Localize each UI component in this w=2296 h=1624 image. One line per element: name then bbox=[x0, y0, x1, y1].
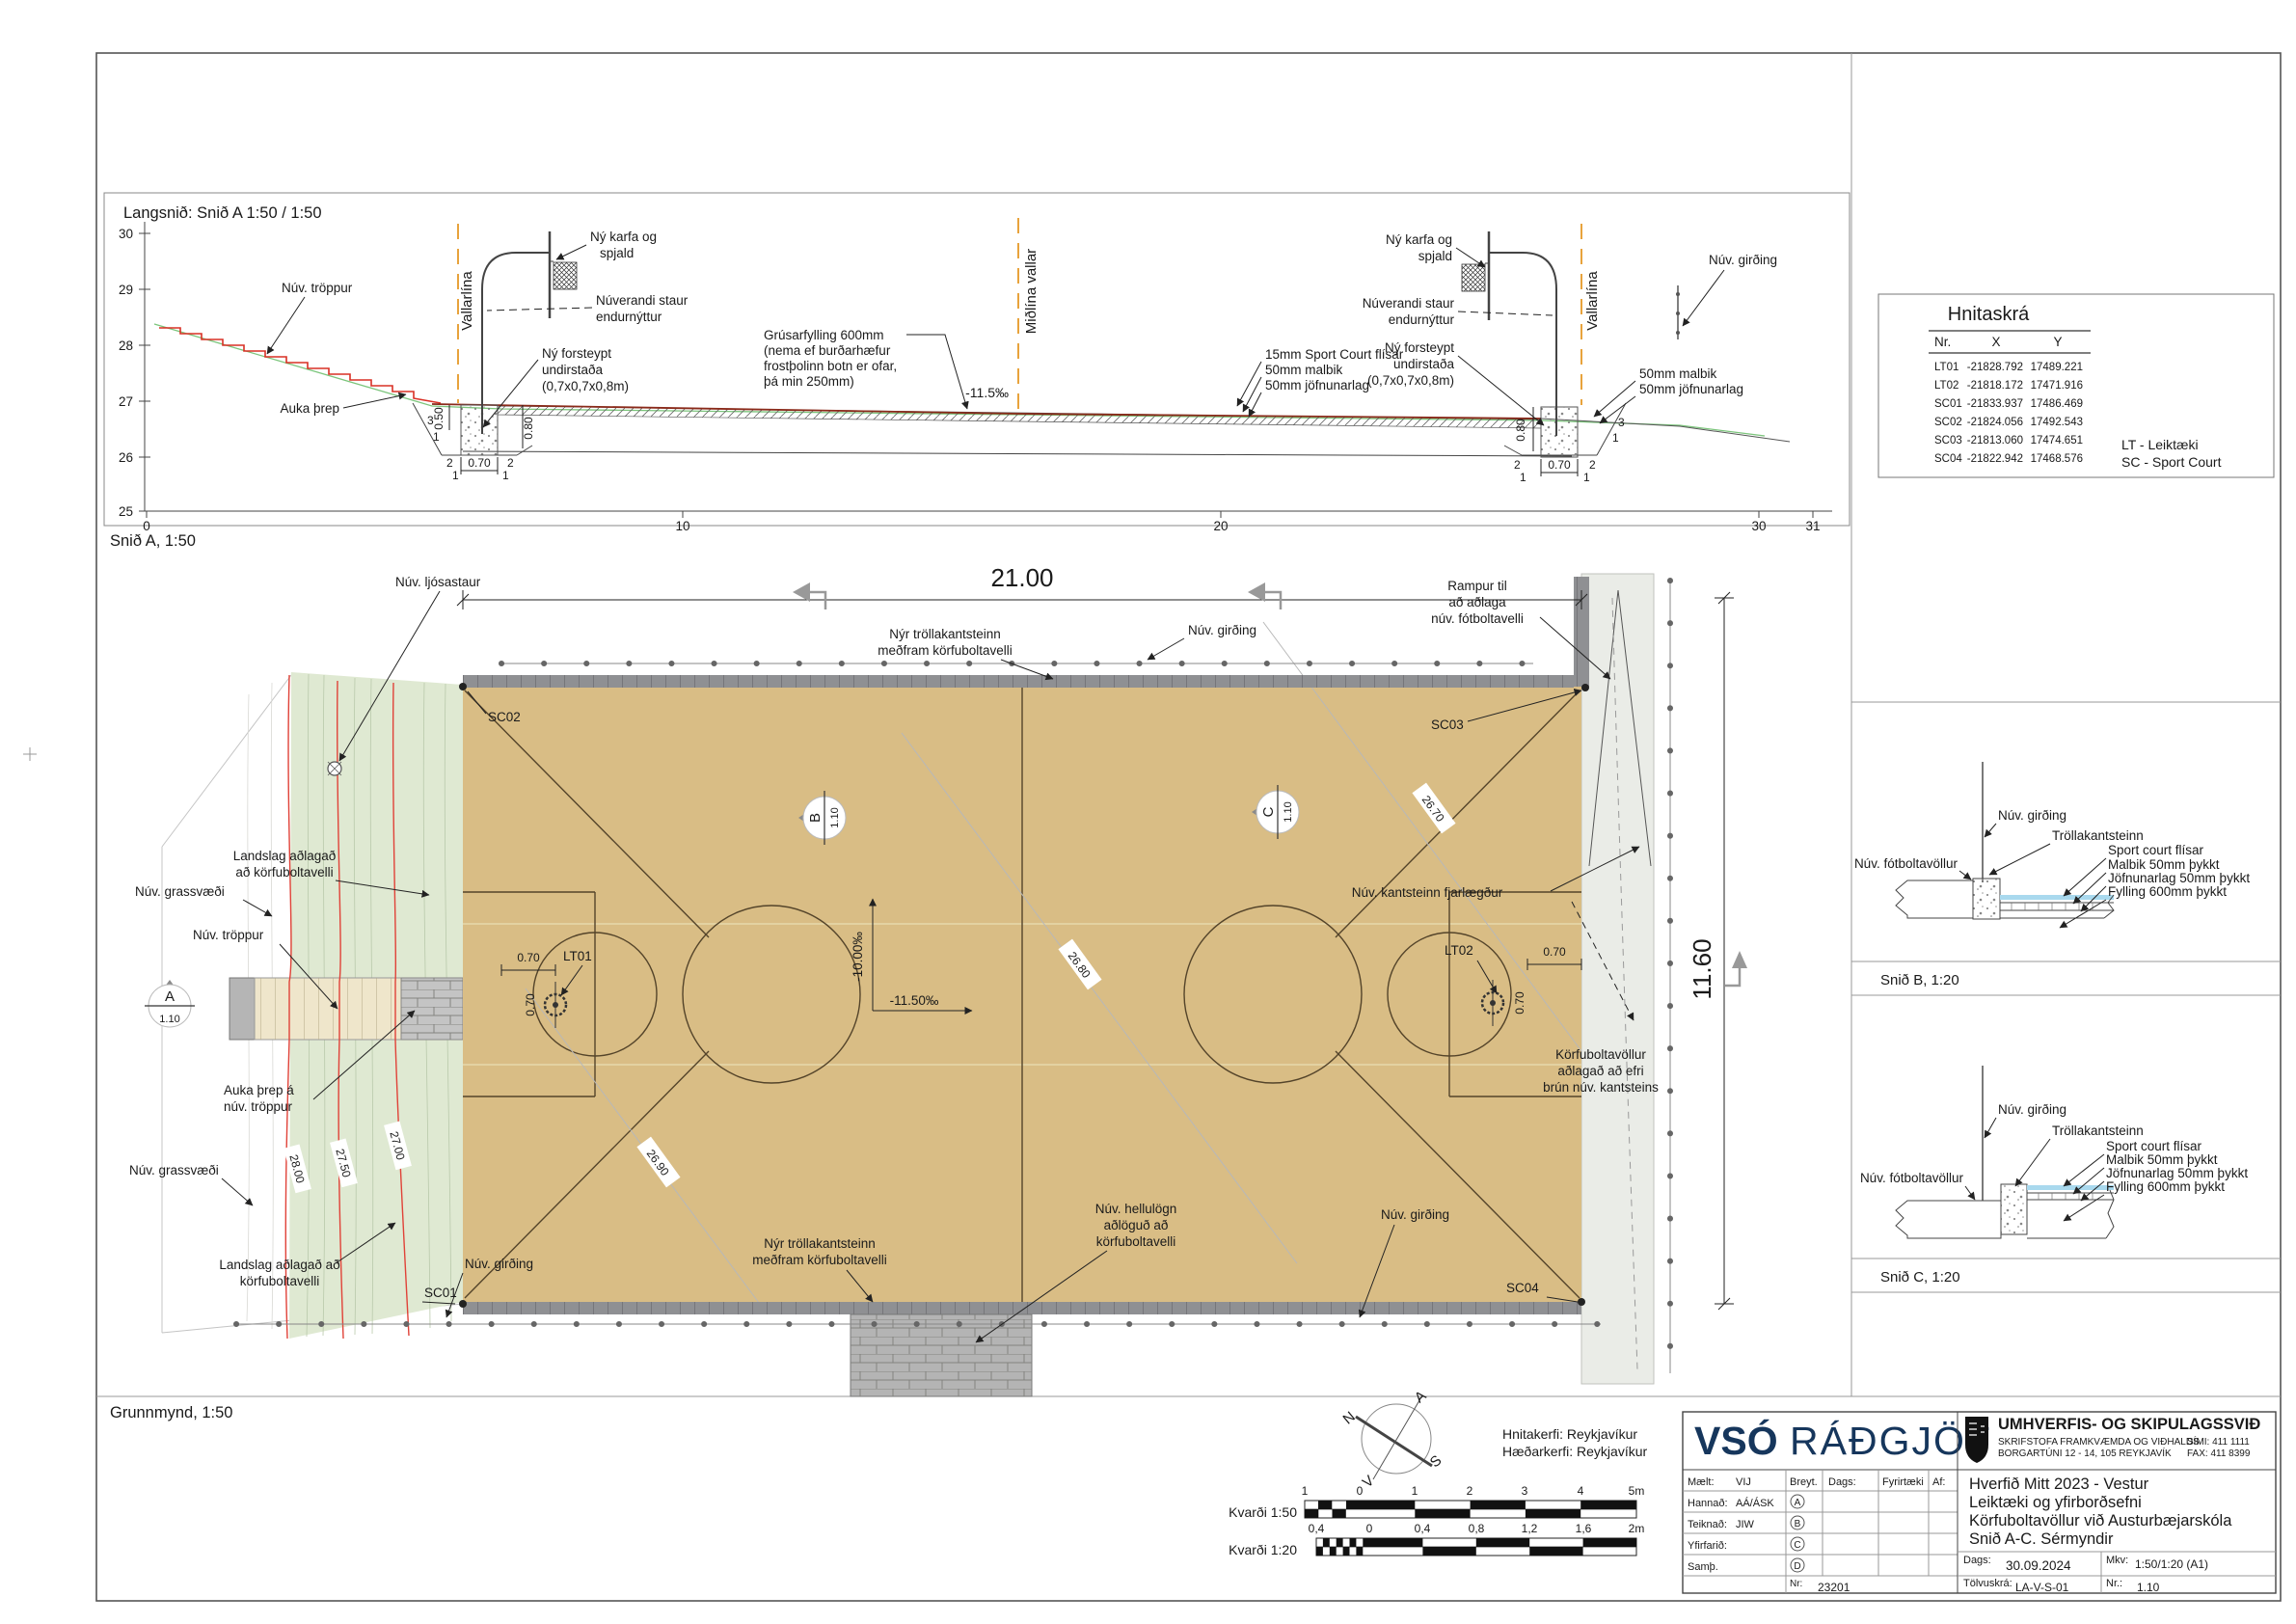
cell: LT01 bbox=[1934, 362, 1958, 373]
football-field-strip bbox=[1581, 574, 1654, 1384]
tick: 0 bbox=[1357, 1484, 1364, 1498]
label-rampur: að aðlaga bbox=[1448, 595, 1506, 609]
marker-scale: 1.10 bbox=[1283, 801, 1294, 822]
section-marker-a: A 1.10 bbox=[145, 980, 195, 1027]
nr-value: 23201 bbox=[1818, 1581, 1850, 1594]
section-x-axis: 0 10 20 30 31 bbox=[143, 511, 1832, 533]
slope-num: 2 bbox=[1589, 458, 1596, 472]
label-hellulogn: Núv. hellulögn bbox=[1095, 1202, 1177, 1216]
label-kantsteinn: Tröllakantsteinn bbox=[2052, 1123, 2144, 1138]
label-layer: Sport court flísar bbox=[2106, 1139, 2202, 1153]
label-girding: Núv. girðing bbox=[465, 1257, 533, 1271]
existing-stairs bbox=[159, 328, 441, 403]
cell: 17492.543 bbox=[2031, 417, 2083, 428]
x-tick: 31 bbox=[1805, 519, 1820, 533]
label-staur: endurnýttur bbox=[596, 310, 662, 324]
label-layer: 15mm Sport Court flísar bbox=[1265, 347, 1404, 362]
x-tick: 30 bbox=[1751, 519, 1766, 533]
x-tick: 0 bbox=[143, 519, 150, 533]
paving-pattern bbox=[851, 1314, 1032, 1396]
dim-080: 0.80 bbox=[522, 417, 535, 440]
label-grusarfylling: þá min 250mm) bbox=[764, 374, 854, 389]
cell: -21833.937 bbox=[1967, 398, 2023, 410]
lt01-label: LT01 bbox=[563, 949, 592, 963]
dim: 0.70 bbox=[524, 993, 537, 1016]
label-sc04: SC04 bbox=[1506, 1281, 1539, 1295]
label-staur: Núverandi staur bbox=[1363, 296, 1455, 311]
dim-070: 0.70 bbox=[468, 456, 491, 470]
y-tick: 29 bbox=[119, 283, 133, 297]
row-value: VIJ bbox=[1736, 1476, 1751, 1488]
tolvuskra-label: Tölvuskrá: bbox=[1963, 1578, 2012, 1589]
project-line: Hverfið Mitt 2023 - Vestur bbox=[1969, 1475, 2149, 1493]
row-label: Teiknað: bbox=[1688, 1519, 1727, 1530]
label-landslag: Landslag aðlagað að bbox=[219, 1258, 339, 1272]
plan-view: Grunnmynd, 1:50 28.00 27.50 27.00 bbox=[110, 563, 1747, 1421]
row-label: Mælt: bbox=[1688, 1476, 1715, 1488]
mkv-label: Mkv: bbox=[2106, 1555, 2128, 1566]
row-label: Hannað: bbox=[1688, 1498, 1728, 1509]
dim: 0.70 bbox=[1543, 945, 1566, 959]
plan-caption: Grunnmynd, 1:50 bbox=[110, 1404, 233, 1421]
label-trollakant: Nýr tröllakantsteinn bbox=[889, 627, 1001, 641]
dim-070: 0.70 bbox=[1548, 458, 1571, 472]
phone: SÍMI: 411 1111 bbox=[2187, 1435, 2250, 1448]
label-undirstada: (0,7x0,7x0,8m) bbox=[542, 379, 629, 393]
label-trollakant: meðfram körfuboltavelli bbox=[752, 1253, 887, 1267]
dept-name: UMHVERFIS- OG SKIPULAGSSVIÐ bbox=[1998, 1416, 2260, 1433]
label-troppur: Núv. tröppur bbox=[193, 928, 264, 942]
rev-letter: A bbox=[1795, 1498, 1801, 1508]
label-auka: núv. tröppur bbox=[224, 1099, 293, 1114]
fill-bottom bbox=[463, 451, 1572, 456]
row-label: Yfirfarið: bbox=[1688, 1540, 1727, 1552]
label-fotbolta: Núv. fótboltavöllur bbox=[1860, 1171, 1964, 1185]
row-label: Samþ. bbox=[1688, 1561, 1718, 1573]
label-staur: Núverandi staur bbox=[596, 293, 689, 308]
row-value: JIW bbox=[1736, 1519, 1755, 1530]
tick: 0,4 bbox=[1309, 1522, 1325, 1535]
sport-court-layer bbox=[2027, 1185, 2114, 1190]
label-grassvaedi: Núv. grassvæði bbox=[135, 884, 225, 899]
slope-num: 1 bbox=[502, 469, 509, 482]
slope-num: 3 bbox=[427, 414, 434, 427]
footer: N A S V Hnitakerfi: Reykjavíkur Hæðarker… bbox=[1229, 1388, 1647, 1557]
label-sc02: SC02 bbox=[488, 710, 521, 724]
logo-vso: VSÓ bbox=[1694, 1419, 1778, 1463]
midlina-vallar: Miðlína vallar bbox=[1018, 218, 1040, 413]
slope-num: 3 bbox=[1618, 416, 1625, 429]
haedarkerfi: Hæðarkerfi: Reykjavíkur bbox=[1502, 1444, 1647, 1459]
dim-080: 0.80 bbox=[1514, 419, 1527, 442]
detail-b: Núv. girðing Tröllakantsteinn Sport cour… bbox=[1851, 702, 2281, 995]
section-cut-arrow bbox=[1248, 582, 1265, 602]
tolvuskra-value: LA-V-S-01 bbox=[2015, 1581, 2069, 1594]
section-caption: Snið A, 1:50 bbox=[110, 532, 196, 550]
cell: -21822.942 bbox=[1967, 453, 2023, 465]
label-korfubolta: brún núv. kantsteins bbox=[1543, 1080, 1659, 1095]
vallarlina-label: Vallarlína bbox=[1584, 271, 1601, 331]
y-tick: 30 bbox=[119, 227, 133, 241]
label-karfa: Ný karfa og bbox=[1386, 232, 1452, 247]
col-header: Breyt. bbox=[1790, 1476, 1818, 1488]
label-grusarfylling: frostþolinn botn er ofar, bbox=[764, 359, 897, 373]
cell: SC01 bbox=[1934, 398, 1962, 410]
tick: 1 bbox=[1302, 1484, 1309, 1498]
office-name: SKRIFSTOFA FRAMKVÆMDA OG VIÐHALDS bbox=[1998, 1437, 2200, 1448]
midlina-label: Miðlína vallar bbox=[1023, 249, 1040, 334]
section-title: Langsnið: Snið A 1:50 / 1:50 bbox=[123, 204, 322, 222]
label-ljosastaur: Núv. ljósastaur bbox=[395, 575, 481, 589]
nr-label: Nr: bbox=[1790, 1579, 1802, 1589]
slope-h-label: -11.50‰ bbox=[890, 993, 939, 1008]
tick: 1,2 bbox=[1522, 1522, 1538, 1535]
existing-slab bbox=[1896, 880, 1973, 918]
label-layer: Malbik 50mm þykkt bbox=[2106, 1152, 2218, 1167]
cell: -21813.060 bbox=[1967, 435, 2023, 447]
row-value: AÁ/ÁSK bbox=[1736, 1497, 1774, 1509]
existing-stairs-plan bbox=[230, 978, 463, 1040]
detail-b-caption: Snið B, 1:20 bbox=[1880, 972, 1959, 988]
label-fotbolta: Núv. fótboltavöllur bbox=[1854, 856, 1958, 871]
cell: 17489.221 bbox=[2031, 362, 2083, 373]
address: BORGARTÚNI 12 - 14, 105 REYKJAVÍK bbox=[1998, 1447, 2172, 1459]
label-grusarfylling: (nema ef burðarhæfur bbox=[764, 343, 891, 358]
label-undirstada: undirstaða bbox=[542, 363, 604, 377]
tick: 4 bbox=[1578, 1484, 1584, 1498]
slope-num: 1 bbox=[452, 469, 459, 482]
dim-width: 21.00 bbox=[990, 563, 1053, 592]
col-header: Y bbox=[2053, 335, 2062, 349]
y-tick: 27 bbox=[119, 394, 133, 409]
marker-scale: 1.10 bbox=[829, 807, 841, 827]
label-layer: 50mm jöfnunarlag bbox=[1265, 378, 1369, 392]
tick: 0 bbox=[1366, 1522, 1373, 1535]
drawing-sheet: Langsnið: Snið A 1:50 / 1:50 Snið A, 1:5… bbox=[0, 0, 2296, 1624]
slope-num: 2 bbox=[507, 456, 514, 470]
light-pole bbox=[328, 762, 341, 775]
project-line: Körfuboltavöllur við Austurbæjarskóla bbox=[1969, 1512, 2232, 1529]
label-landslag: körfuboltavelli bbox=[240, 1274, 320, 1288]
basket-net-left bbox=[554, 262, 577, 289]
section-y-axis: 30 29 28 27 26 25 bbox=[119, 222, 150, 519]
dim-height: 11.60 bbox=[1688, 938, 1716, 999]
label-layer: 50mm malbik bbox=[1265, 363, 1343, 377]
y-tick: 28 bbox=[119, 338, 133, 353]
longitudinal-section: Langsnið: Snið A 1:50 / 1:50 Snið A, 1:5… bbox=[104, 193, 1850, 550]
label-karfa: Ný karfa og bbox=[590, 230, 657, 244]
y-tick: 25 bbox=[119, 504, 133, 519]
label-grusarfylling: Grúsarfylling 600mm bbox=[764, 328, 884, 342]
title-block: VSÓ RÁÐGJÖF UMHVERFIS- OG SKIPULAGSSVIÐ … bbox=[1683, 1412, 2276, 1594]
basket-net-right bbox=[1462, 264, 1485, 291]
cell: -21818.172 bbox=[1967, 380, 2023, 392]
legend-sc: SC - Sport Court bbox=[2121, 454, 2222, 470]
label-undirstada: undirstaða bbox=[1393, 357, 1455, 371]
label-karfa: spjald bbox=[1418, 249, 1452, 263]
compass-n: N bbox=[1339, 1409, 1358, 1428]
label-hellulogn: körfuboltavelli bbox=[1096, 1234, 1176, 1249]
scale-label: Kvarði 1:20 bbox=[1229, 1542, 1297, 1557]
label-kantsteinn: Tröllakantsteinn bbox=[2052, 828, 2144, 843]
tick: 2 bbox=[1467, 1484, 1473, 1498]
label-girding: Núv. girðing bbox=[1381, 1207, 1449, 1222]
label-girding: Núv. girðing bbox=[1188, 623, 1256, 637]
label-layer: Fylling 600mm þykkt bbox=[2106, 1179, 2225, 1194]
tick: 1,6 bbox=[1576, 1522, 1592, 1535]
label-layer: Jöfnunarlag 50mm þykkt bbox=[2106, 1166, 2248, 1180]
label-sc03: SC03 bbox=[1431, 717, 1464, 732]
legend-lt: LT - Leiktæki bbox=[2121, 437, 2199, 452]
compass-s: S bbox=[1427, 1452, 1445, 1471]
logo-radgjof: RÁÐGJÖF bbox=[1790, 1419, 1992, 1463]
tick: 0,8 bbox=[1469, 1522, 1485, 1535]
label-sc01: SC01 bbox=[424, 1286, 457, 1300]
compass: N A S V bbox=[1339, 1388, 1445, 1491]
dim-050: 0.50 bbox=[432, 407, 446, 430]
col-header: Af: bbox=[1932, 1476, 1945, 1488]
slope-num: 1 bbox=[1520, 471, 1526, 484]
rev-letter: B bbox=[1795, 1519, 1801, 1529]
nr2-value: 1.10 bbox=[2137, 1581, 2160, 1594]
marker-letter: C bbox=[1260, 806, 1277, 817]
curb-block bbox=[2001, 1184, 2027, 1234]
marker-letter: A bbox=[165, 988, 175, 1005]
label-layer: Sport court flísar bbox=[2108, 843, 2204, 857]
detail-c-caption: Snið C, 1:20 bbox=[1880, 1269, 1960, 1286]
label-karfa: spjald bbox=[600, 246, 634, 260]
label-landslag: að körfuboltavelli bbox=[235, 865, 333, 880]
project-line: Snið A-C. Sérmyndir bbox=[1969, 1530, 2114, 1548]
y-tick: 26 bbox=[119, 450, 133, 465]
tick: 5m bbox=[1629, 1484, 1645, 1498]
marker-letter: B bbox=[807, 813, 824, 823]
drawing-canvas: Langsnið: Snið A 1:50 / 1:50 Snið A, 1:5… bbox=[0, 0, 2296, 1624]
basketball-court: 26.70 26.80 26.90 -10.00‰ -11.50‰ LT01 0… bbox=[463, 622, 1581, 1307]
existing-slab bbox=[1896, 1201, 2001, 1238]
coordinate-table: Hnitaskrá Nr. X Y LT01 -21828.792 17489.… bbox=[1878, 294, 2274, 477]
cell: -21828.792 bbox=[1967, 362, 2023, 373]
table-title: Hnitaskrá bbox=[1948, 304, 2030, 325]
slope-num: 1 bbox=[1583, 471, 1590, 484]
label-kantsteinn: Núv. kantsteinn fjarlægður bbox=[1352, 885, 1503, 900]
cell: -21824.056 bbox=[1967, 417, 2023, 428]
curb-block bbox=[1973, 879, 2000, 919]
label-slope: -11.5‰ bbox=[965, 385, 1009, 400]
project-line: Leiktæki og yfirborðsefni bbox=[1969, 1494, 2142, 1511]
label-staur: endurnýttur bbox=[1389, 312, 1455, 327]
label-undirstada: Ný forsteypt bbox=[1385, 340, 1454, 355]
cell: SC02 bbox=[1934, 417, 1962, 428]
mkv-value: 1:50/1:20 (A1) bbox=[2135, 1557, 2208, 1571]
label-hellulogn: aðlöguð að bbox=[1104, 1218, 1169, 1232]
label-trollakant: meðfram körfuboltavelli bbox=[878, 643, 1013, 658]
vallarlina-left: Vallarlína bbox=[458, 224, 475, 403]
scale-bar-50: Kvarði 1:50 1 0 1 2 3 4 5m bbox=[1229, 1484, 1644, 1520]
label-undirstada: (0,7x0,7x0,8m) bbox=[1367, 373, 1454, 388]
label-layer: Fylling 600mm þykkt bbox=[2108, 884, 2227, 899]
col-header: Dags: bbox=[1828, 1476, 1856, 1488]
x-tick: 20 bbox=[1213, 519, 1228, 533]
label-layer: Jöfnunarlag 50mm þykkt bbox=[2108, 871, 2250, 885]
label-auka-threp: Auka þrep bbox=[280, 401, 339, 416]
dags-label: Dags: bbox=[1963, 1555, 1991, 1566]
lt02-label: LT02 bbox=[1445, 943, 1473, 958]
label-undirstada: Ný forsteypt bbox=[542, 346, 611, 361]
cell: SC03 bbox=[1934, 435, 1962, 447]
hnitakerfi: Hnitakerfi: Reykjavíkur bbox=[1502, 1426, 1637, 1442]
label-troppur: Núv. tröppur bbox=[282, 281, 353, 295]
slope-num: 2 bbox=[446, 456, 453, 470]
scale-label: Kvarði 1:50 bbox=[1229, 1504, 1297, 1520]
col-header: X bbox=[1991, 335, 2000, 349]
label-korfubolta: aðlagað að efri bbox=[1557, 1064, 1643, 1078]
tick: 0,4 bbox=[1415, 1522, 1431, 1535]
slope-num: 1 bbox=[433, 430, 440, 444]
label-layer: Malbik 50mm þykkt bbox=[2108, 857, 2220, 872]
col-header: Fyrirtæki bbox=[1882, 1476, 1924, 1488]
dim: 0.70 bbox=[517, 951, 540, 964]
fax: FAX: 411 8399 bbox=[2187, 1448, 2251, 1459]
registration-mark bbox=[23, 747, 37, 761]
vallarlina-label: Vallarlína bbox=[459, 271, 475, 331]
dim: 0.70 bbox=[1513, 991, 1526, 1015]
rev-letter: D bbox=[1794, 1561, 1800, 1572]
detail-c: Núv. girðing Tröllakantsteinn Sport cour… bbox=[1851, 1066, 2281, 1292]
x-tick: 10 bbox=[675, 519, 689, 533]
label-landslag: Landslag aðlagað bbox=[233, 849, 337, 863]
rev-letter: C bbox=[1794, 1540, 1800, 1551]
label-auka: Auka þrep á bbox=[224, 1083, 294, 1097]
cell: 17486.469 bbox=[2031, 398, 2083, 410]
label-layer: 50mm jöfnunarlag bbox=[1639, 382, 1743, 396]
nr2-label: Nr.: bbox=[2106, 1578, 2122, 1589]
slope-num: 1 bbox=[1612, 431, 1619, 445]
col-header: Nr. bbox=[1934, 335, 1951, 349]
cell: LT02 bbox=[1934, 380, 1958, 392]
tick: 1 bbox=[1412, 1484, 1418, 1498]
label-girding: Núv. girðing bbox=[1998, 1102, 2066, 1117]
label-layer: 50mm malbik bbox=[1639, 366, 1717, 381]
cell: SC04 bbox=[1934, 453, 1962, 465]
compass-a: A bbox=[1412, 1388, 1430, 1406]
marker-scale: 1.10 bbox=[159, 1014, 179, 1025]
label-rampur: núv. fótboltavelli bbox=[1431, 611, 1524, 626]
section-cut-arrow bbox=[793, 582, 810, 602]
cell: 17474.651 bbox=[2031, 435, 2083, 447]
vallarlina-right: Vallarlína bbox=[1581, 224, 1601, 405]
city-shield-icon bbox=[1965, 1417, 1988, 1463]
label-trollakant: Nýr tröllakantsteinn bbox=[764, 1236, 876, 1251]
foundation-right: 0.80 0.70 2 1 2 1 3 1 bbox=[1462, 231, 1626, 484]
cell: 17471.916 bbox=[2031, 380, 2083, 392]
label-girding: Núv. girðing bbox=[1709, 253, 1777, 267]
label-girding: Núv. girðing bbox=[1998, 808, 2066, 823]
dags-value: 30.09.2024 bbox=[2006, 1558, 2071, 1573]
tick: 2m bbox=[1629, 1522, 1645, 1535]
cell: 17468.576 bbox=[2031, 453, 2083, 465]
label-rampur: Rampur til bbox=[1447, 579, 1507, 593]
slope-num: 2 bbox=[1514, 458, 1521, 472]
north-arrow bbox=[1732, 951, 1747, 968]
label-grassvaedi: Núv. grassvæði bbox=[129, 1163, 219, 1177]
label-korfubolta: Körfuboltavöllur bbox=[1555, 1047, 1646, 1062]
slope-v-label: -10.00‰ bbox=[851, 932, 865, 982]
scale-bar-20: Kvarði 1:20 0,4 0 0,4 0,8 1,2 1,6 2m bbox=[1229, 1522, 1644, 1557]
tick: 3 bbox=[1522, 1484, 1528, 1498]
